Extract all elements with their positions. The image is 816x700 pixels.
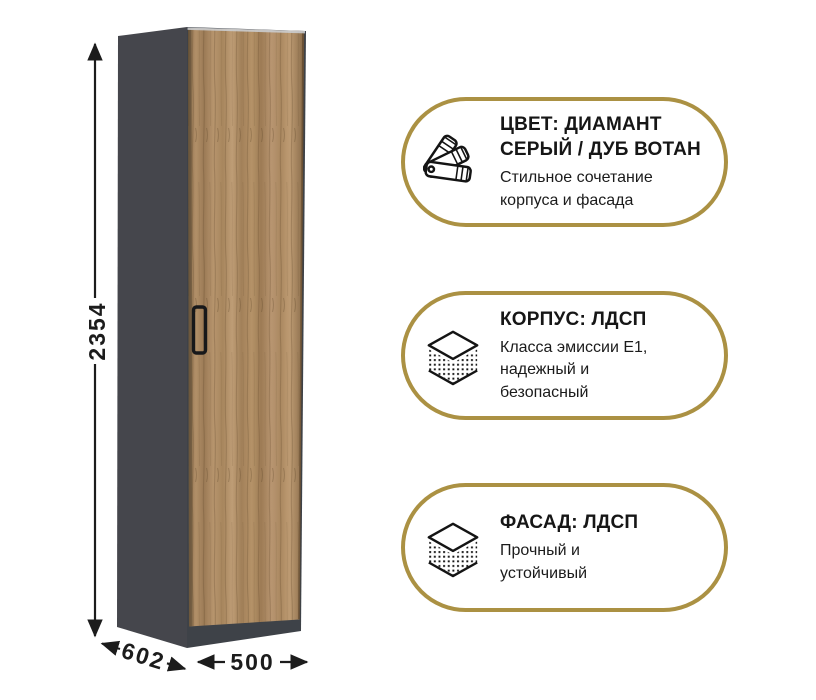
badge-fasad-title: ФАСАД: ЛДСП [500,510,638,535]
laminated-layers-icon [421,326,485,386]
badge-korpus-title: КОРПУС: ЛДСП [500,307,647,332]
height-dimension-value: 2354 [84,301,110,360]
feature-badge-fasad: ФАСАД: ЛДСП Прочный и устойчивый [401,483,728,612]
width-dimension: 500 [198,649,307,675]
feature-badge-korpus: КОРПУС: ЛДСП Класса эмиссии Е1, надежный… [401,291,728,420]
badge-fasad-description: Прочный и устойчивый [500,540,638,585]
badge-color-title-line2: СЕРЫЙ / ДУБ ВОТАН [500,139,701,160]
wardrobe-side-panel [117,27,187,648]
wardrobe [117,27,306,648]
badge-color-title-line1: ЦВЕТ: ДИАМАНТ [500,114,662,135]
feature-badge-color: ЦВЕТ: ДИАМАНТ СЕРЫЙ / ДУБ ВОТАН Стильное… [401,97,728,227]
height-dimension: 2354 [84,44,110,636]
laminated-layers-icon [421,518,485,578]
badge-color-title: ЦВЕТ: ДИАМАНТ СЕРЫЙ / ДУБ ВОТАН [500,112,700,162]
color-swatch-fan-icon [421,132,485,192]
badge-korpus-description: Класса эмиссии Е1, надежный и безопасный [500,337,647,404]
badge-color-description: Стильное сочетание корпуса и фасада [500,167,700,212]
product-infographic: 2354 602 500 [0,0,816,700]
width-dimension-value: 500 [230,649,274,675]
depth-dimension-value: 602 [118,637,168,675]
